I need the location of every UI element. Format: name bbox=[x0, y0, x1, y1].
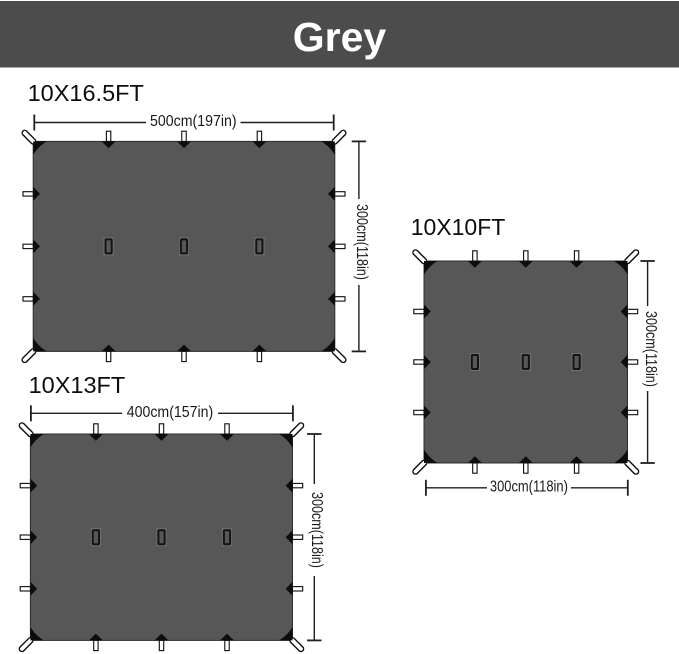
svg-text:400cm(157in): 400cm(157in) bbox=[127, 404, 214, 421]
svg-text:300cm(118in): 300cm(118in) bbox=[353, 204, 370, 280]
svg-text:500cm(197in): 500cm(197in) bbox=[150, 113, 237, 130]
svg-text:10X16.5FT: 10X16.5FT bbox=[28, 80, 144, 106]
svg-text:300cm(118in): 300cm(118in) bbox=[642, 311, 659, 387]
svg-text:300cm(118in): 300cm(118in) bbox=[490, 479, 568, 496]
svg-text:10X10FT: 10X10FT bbox=[411, 214, 506, 240]
svg-text:10X13FT: 10X13FT bbox=[29, 372, 126, 398]
svg-text:Grey: Grey bbox=[293, 14, 387, 60]
svg-text:300cm(118in): 300cm(118in) bbox=[308, 492, 325, 568]
